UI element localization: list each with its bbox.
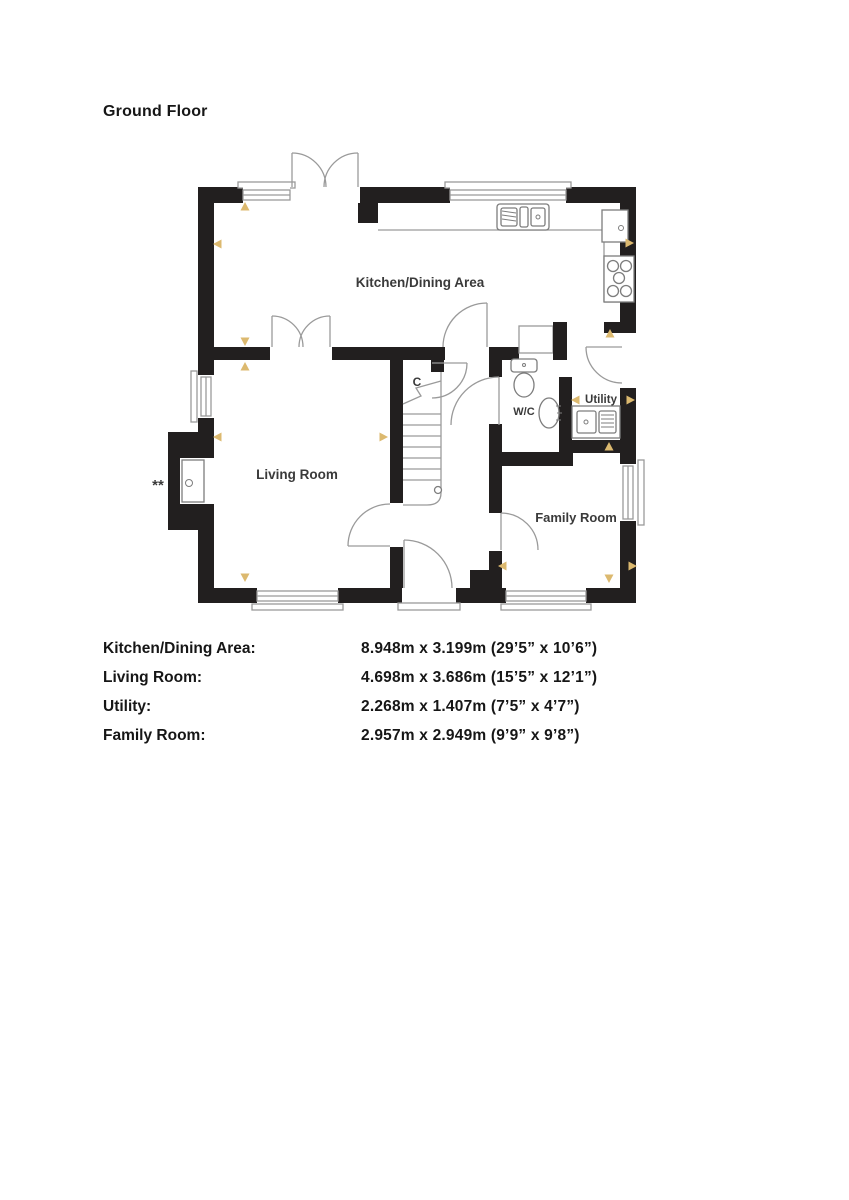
dimension-marker-icon [213,433,222,442]
family-room-label: Family Room [535,510,617,525]
toilet [511,359,537,397]
kitchen-dining-label: Kitchen/Dining Area [356,275,485,290]
wc-label: W/C [513,406,534,418]
window-family-right [620,460,644,525]
dimensions-table: Kitchen/Dining Area: 8.948m x 3.199m (29… [103,640,663,756]
interior-walls [214,322,636,588]
dimension-marker-icon [380,433,389,442]
living-kitchen-double-door [272,316,330,347]
dimension-marker-icon [241,338,250,347]
room-name: Kitchen/Dining Area: [103,640,361,658]
basin [539,398,562,428]
french-doors [292,153,358,187]
room-dimensions: 4.698m x 3.686m (15’5” x 12’1”) [361,669,663,687]
boiler-unit [602,210,628,242]
floorplan-page: Ground Floor [0,0,849,1200]
fireplace [182,460,204,502]
cupboard-label: C [413,375,422,389]
utility-sink [572,406,620,438]
window-family-bottom [501,588,591,610]
window-kitchen [445,182,571,203]
dimension-marker-icon [241,202,250,211]
family-room-door [501,513,538,550]
kitchen-counter [378,230,620,302]
stairs [403,372,442,505]
window-living-bottom [252,588,343,610]
footnote-marker: ** [152,477,164,494]
wc-door [451,377,499,425]
dimension-markers [213,202,637,583]
living-hall-door [348,504,390,546]
hob [604,256,634,302]
room-dimensions: 8.948m x 3.199m (29’5” x 10’6”) [361,640,663,658]
table-row: Utility: 2.268m x 1.407m (7’5” x 4’7”) [103,698,663,727]
window-living-left [191,371,214,422]
kitchen-sink [497,204,549,230]
back-door [586,347,622,383]
room-dimensions: 2.268m x 1.407m (7’5” x 4’7”) [361,698,663,716]
dimension-marker-icon [241,362,250,371]
dimension-marker-icon [213,240,222,249]
room-dimensions: 2.957m x 2.949m (9’9” x 9’8”) [361,727,663,745]
dimension-marker-icon [605,575,614,584]
kitchen-hall-door [443,303,487,347]
table-row: Family Room: 2.957m x 2.949m (9’9” x 9’8… [103,727,663,756]
table-row: Living Room: 4.698m x 3.686m (15’5” x 12… [103,669,663,698]
room-name: Family Room: [103,727,361,745]
room-name: Living Room: [103,669,361,687]
dimension-marker-icon [571,396,580,405]
room-name: Utility: [103,698,361,716]
front-door [398,540,460,610]
table-row: Kitchen/Dining Area: 8.948m x 3.199m (29… [103,640,663,669]
living-room-label: Living Room [256,467,338,482]
window-top-left [238,182,295,203]
dimension-marker-icon [241,574,250,583]
floor-plan-drawing: Kitchen/Dining Area Living Room Family R… [0,0,849,1200]
utility-label: Utility [585,394,618,406]
